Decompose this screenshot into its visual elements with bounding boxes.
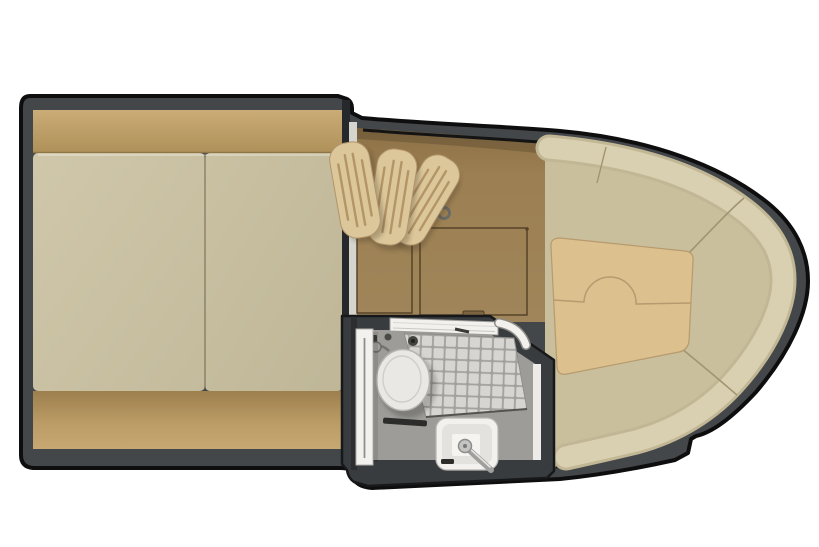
shower-door-pocket-strip bbox=[533, 364, 541, 460]
sink-drain-slot bbox=[441, 459, 454, 464]
head-compartment bbox=[342, 316, 554, 486]
hatch-hinge-dot bbox=[525, 227, 529, 231]
shower-drain-center bbox=[411, 339, 415, 343]
boat-cabin-floorplan bbox=[0, 0, 819, 547]
pocket-door-shadow bbox=[373, 332, 378, 462]
berth-area bbox=[33, 110, 343, 449]
mattress-left bbox=[33, 153, 205, 391]
footboard-strip bbox=[33, 391, 343, 449]
floorplan-svg bbox=[0, 0, 819, 547]
lounge-cushion bbox=[551, 238, 693, 374]
headboard-shelf bbox=[33, 110, 343, 153]
hose-fitting bbox=[385, 334, 392, 341]
faucet-valve-center bbox=[463, 444, 467, 448]
mattress-right bbox=[205, 153, 343, 391]
sink bbox=[436, 418, 498, 470]
